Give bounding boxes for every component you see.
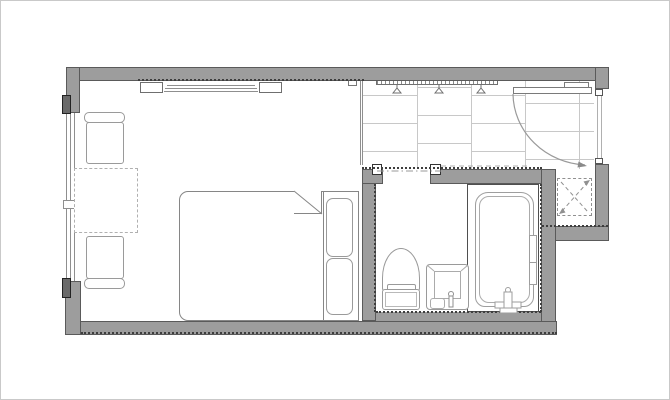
hatch-bath-bottom: [376, 311, 541, 313]
entry-door-leaf: [513, 87, 592, 94]
window-end-cap: [62, 95, 71, 114]
entry-door-jamb: [595, 158, 603, 164]
bath-door-jamb: [372, 164, 382, 175]
entry-door-closer: [564, 82, 589, 88]
bed-fold-corner: [294, 191, 322, 214]
tile-column: [526, 81, 580, 169]
table-dashed: [74, 168, 138, 233]
entry-door-jamb: [595, 89, 603, 96]
tile-column: [418, 81, 472, 169]
tile-column: [580, 81, 594, 169]
pillow: [326, 198, 353, 257]
entry-tile-floor: [363, 81, 594, 169]
console-shelf-line: [164, 91, 258, 92]
window-end-cap: [62, 278, 71, 298]
wall-bathroom-top-right: [430, 169, 542, 184]
tile-column: [472, 81, 526, 169]
console-end-block: [140, 82, 163, 93]
console-shelf-line: [165, 88, 257, 89]
hatch-partition: [374, 184, 376, 312]
wall-right-upper: [595, 67, 609, 89]
grab-bar-joint: [530, 262, 536, 263]
sink-basin: [434, 271, 461, 299]
hatch-under-shaft: [542, 225, 608, 227]
hatch-bottom-wall: [81, 332, 557, 334]
chair-seat: [86, 236, 124, 279]
bath-door-jamb: [430, 164, 441, 175]
chair-backrest: [84, 278, 125, 289]
floor-plan: [0, 0, 670, 400]
pillow: [326, 258, 353, 315]
wall-bathroom-right: [541, 169, 556, 335]
door-threshold-line: [597, 93, 598, 163]
toilet-tank-inner: [385, 292, 417, 307]
bathtub-inner: [479, 196, 530, 303]
hatch-bath-top-wall: [362, 167, 542, 169]
tile-column: [363, 81, 418, 169]
window-line-outer: [66, 113, 67, 281]
sink-soap-dish: [430, 298, 445, 309]
chair-seat: [86, 122, 124, 164]
hatch-top-wall: [138, 79, 364, 81]
window-line-mid: [70, 113, 71, 281]
bed-duvet-edge: [323, 191, 324, 321]
floor-divider: [360, 81, 363, 165]
console-shelf-line: [167, 85, 255, 86]
hatch-bath-right: [540, 184, 542, 312]
grab-bar: [529, 235, 537, 285]
shaft-dashed-box: [557, 178, 592, 216]
door-threshold-line: [601, 93, 602, 163]
console-end-block: [259, 82, 282, 93]
